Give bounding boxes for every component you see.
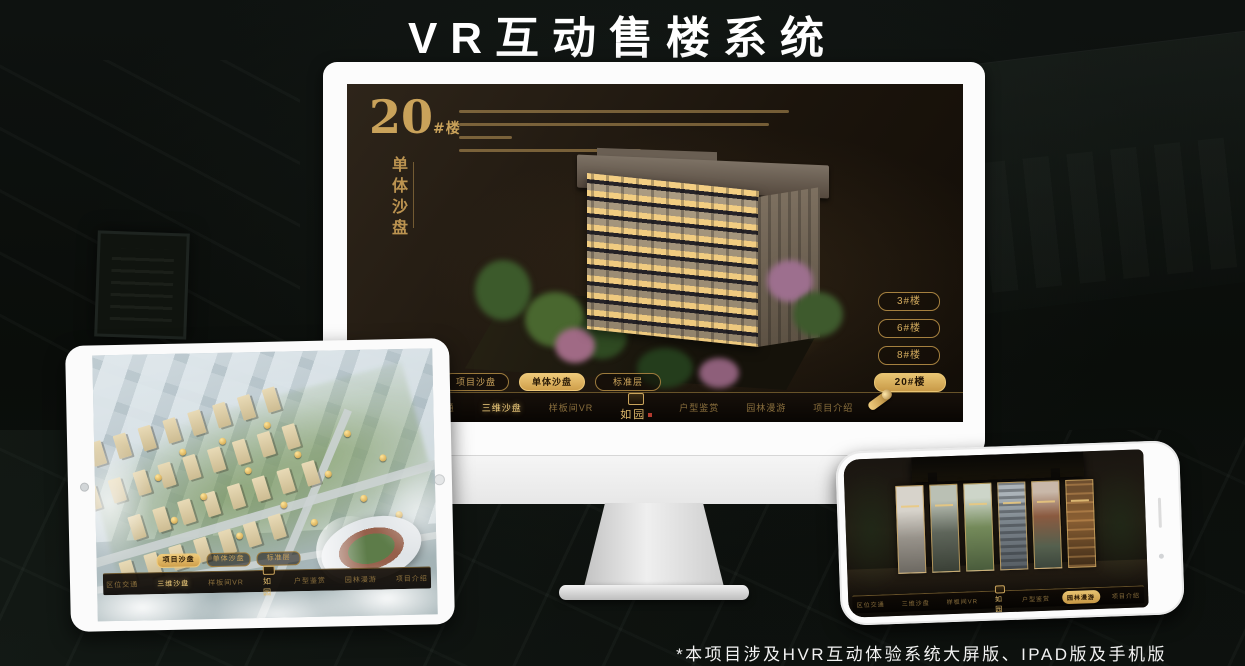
- building-number: 20: [369, 90, 433, 144]
- brand-logo: 如园: [620, 393, 652, 422]
- building-number-badge: [311, 519, 318, 526]
- nav-item-3d-sandtable[interactable]: 三维沙盘: [896, 596, 934, 610]
- phone-camera-icon: [1158, 553, 1163, 558]
- nav-item-3d-sandtable[interactable]: 三维沙盘: [152, 576, 194, 591]
- building-unit: #楼: [433, 121, 461, 137]
- tab-single-sandtable[interactable]: 单体沙盘: [519, 373, 585, 391]
- brand-logo-text: 如园: [995, 594, 1006, 614]
- nav-item-project-intro[interactable]: 项目介绍: [1107, 588, 1145, 602]
- building-number-badge: [325, 470, 332, 477]
- brand-logo-text: 如园: [620, 406, 652, 422]
- brand-logo: 如园: [994, 585, 1005, 614]
- phone-device: 区位交通 三维沙盘 样板间VR 如园 户型鉴赏 园林漫游 项目介绍: [835, 440, 1185, 626]
- building-number-badge: [245, 467, 252, 474]
- nav-item-unit-gallery[interactable]: 户型鉴赏: [1017, 591, 1055, 605]
- cloud: [92, 439, 153, 566]
- floor-button-8[interactable]: 8#楼: [878, 346, 940, 365]
- building-number-badge: [200, 493, 207, 500]
- nav-item-showroom-vr[interactable]: 样板间VR: [544, 399, 599, 416]
- scene-card[interactable]: [895, 485, 926, 574]
- speaker-icon: [1157, 497, 1161, 527]
- building-number-badge: [294, 451, 301, 458]
- tab-standard-floor[interactable]: 标准层: [595, 373, 661, 391]
- building-heading: 20#楼: [369, 94, 461, 140]
- monitor-stand-base: [559, 585, 749, 600]
- monitor-stand-neck: [584, 503, 724, 587]
- floor-button-6[interactable]: 6#楼: [878, 319, 940, 338]
- floor-button-group: 3#楼 6#楼 8#楼 20#楼: [878, 292, 940, 400]
- certificate-text-lines: [110, 248, 174, 322]
- red-seal-icon: [648, 413, 652, 417]
- cloud: [372, 463, 438, 560]
- building-number-badge: [219, 438, 226, 445]
- nav-item-unit-gallery[interactable]: 户型鉴赏: [674, 399, 724, 416]
- tab-standard-floor[interactable]: 标准层: [256, 551, 300, 566]
- building-number-badge: [379, 454, 386, 461]
- scroll-icon[interactable]: [867, 390, 893, 412]
- background-certificate-frame: [94, 230, 190, 339]
- nav-item-showroom-vr[interactable]: 样板间VR: [203, 575, 249, 590]
- phone-side-bezel: [1144, 448, 1175, 607]
- seal-icon: [628, 393, 644, 405]
- building-subtitle: 单体沙盘: [385, 156, 409, 240]
- tab-single-sandtable[interactable]: 单体沙盘: [206, 552, 250, 567]
- nav-item-location[interactable]: 区位交通: [851, 597, 889, 611]
- tablet-device: 项目沙盘 单体沙盘 标准层 区位交通 三维沙盘 样板间VR 如园 户型鉴赏 园林…: [65, 338, 455, 632]
- nav-item-unit-gallery[interactable]: 户型鉴赏: [289, 573, 331, 588]
- nav-item-location[interactable]: 区位交通: [101, 577, 143, 592]
- tablet-screen: 项目沙盘 单体沙盘 标准层 区位交通 三维沙盘 样板间VR 如园 户型鉴赏 园林…: [92, 348, 437, 621]
- scene-card[interactable]: [929, 484, 960, 573]
- building-model: [437, 142, 867, 400]
- subtitle-divider: [413, 162, 414, 228]
- poster-canvas: VR互动售楼系统 20#楼 单体沙盘: [0, 0, 1245, 666]
- footnote-text: *本项目涉及HVR互动体验系统大屏版、IPAD版及手机版: [676, 640, 1167, 665]
- phone-screen: 区位交通 三维沙盘 样板间VR 如园 户型鉴赏 园林漫游 项目介绍: [843, 449, 1148, 617]
- nav-item-showroom-vr[interactable]: 样板间VR: [941, 594, 983, 608]
- nav-item-garden-roam[interactable]: 园林漫游: [741, 399, 791, 416]
- model-front-facade: [587, 173, 759, 347]
- nav-item-project-intro[interactable]: 项目介绍: [391, 571, 433, 586]
- nav-item-garden-roam[interactable]: 园林漫游: [1062, 590, 1100, 604]
- floor-button-3[interactable]: 3#楼: [878, 292, 940, 311]
- scene-card[interactable]: [1065, 479, 1096, 568]
- tree: [475, 260, 531, 320]
- tab-project-sandtable[interactable]: 项目沙盘: [443, 373, 509, 391]
- scene-card[interactable]: [997, 481, 1028, 570]
- page-title: VR互动售楼系统: [0, 2, 1245, 66]
- brand-logo: 如园: [263, 565, 276, 597]
- tree-pink: [555, 328, 595, 363]
- scene-card[interactable]: [963, 483, 994, 572]
- scene-card[interactable]: [1031, 480, 1062, 569]
- tab-project-sandtable[interactable]: 项目沙盘: [156, 553, 200, 568]
- scene-card-gallery: [895, 479, 1096, 574]
- nav-item-project-intro[interactable]: 项目介绍: [808, 399, 858, 416]
- nav-item-garden-roam[interactable]: 园林漫游: [340, 572, 382, 587]
- seal-icon: [263, 565, 275, 574]
- nav-item-3d-sandtable[interactable]: 三维沙盘: [477, 399, 527, 416]
- background-buildings: [979, 137, 1241, 292]
- seal-icon: [994, 585, 1004, 593]
- tree: [793, 292, 843, 337]
- sub-tab-group: 项目沙盘 单体沙盘 标准层: [443, 373, 661, 391]
- tree-pink: [699, 358, 739, 388]
- brand-logo-text: 如园: [263, 575, 275, 597]
